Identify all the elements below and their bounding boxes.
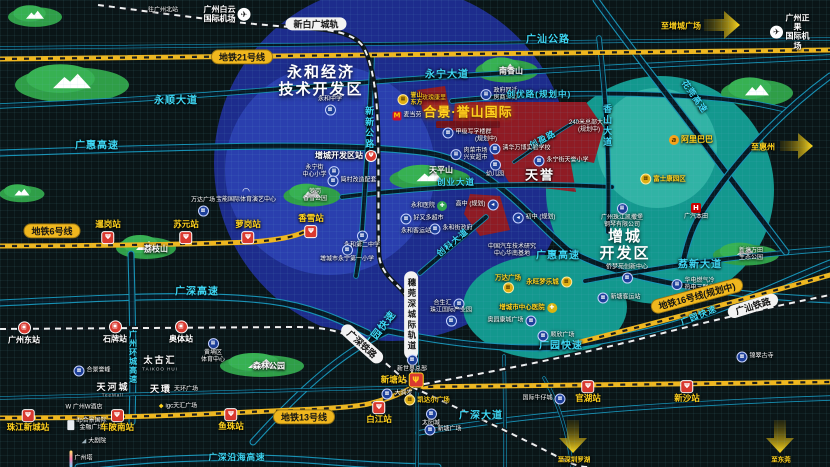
nanxiang-mountain-label: 南香山 [499,66,523,75]
honda-icon: H [691,203,701,213]
map-stage: 往广州北站广州白云 国际机场✈新白广城轨地铁21号线广汕公路至增城广场✈广州正果… [0,0,830,467]
nanxiang-mountain: 南香山 [499,66,523,75]
parc-central-plaza: 天环广场 [174,387,198,394]
yushan-dongfang: ▦誉山 东方 [397,93,422,107]
yushan-international-title: 合景·誉山国际 [423,106,512,121]
shunxin-plaza: ▦顺欣广场 [537,331,574,342]
w-hotel-label: W 广州W酒店 [66,405,103,412]
metro-icon: Ψ [110,409,123,422]
metro-icon: Ψ [224,408,237,421]
yongning-no1-primary-label: 增城市永宁第一小学 [320,257,374,264]
yuzhu-station: Ψ鱼珠站 [218,408,244,432]
parc-central: 天環 [150,384,172,394]
m13-pill: 地铁13号线 [273,409,335,424]
metrobig-icon: Ψ [408,373,423,388]
bld-icon: ▦ [533,156,544,167]
yongning-central-primary-label: 永宁街 中心小学 [302,165,326,179]
aoti-station: ▣奥体站 [169,320,193,343]
m21-pill-label: 地铁21号线 [219,52,265,62]
zc-central-hospital: 增城市中心医院✚ [499,303,557,313]
xiangshan-avenue-label: 香山大道 [602,104,612,148]
chuangyou-road: 创优路(规划中) [507,90,572,100]
rail-icon: ▣ [109,320,122,333]
to-shenzhen-luohu-label: 至深圳罗湖 [558,456,591,463]
qinghua-wanbo-school-label: 清华万博实验学校 [502,146,550,153]
bldg-icon: ▦ [404,395,415,406]
bld-icon: ▦ [671,280,682,291]
igc-tianhui-label: igc天汇广场 [165,404,197,411]
jiancun-renewal: ▦简村改造配套 [327,176,376,187]
xintang-plaza: ▦新塘广场 [424,425,461,436]
guanghui-expressway-label: 广惠高速 [75,140,119,152]
yanhai-expressway-label: 广深沿海高速 [208,453,265,463]
bldg-icon: ▦ [397,95,408,106]
metro-icon: Ψ [21,409,34,422]
luogang-station: 萝岗站Ψ [235,220,261,244]
kangli-plot-label: 玫瑰康里 [422,96,446,103]
aoyuan-kangcheng-plaza: 奥园康城广场▦ [487,316,536,327]
yonghe-middle-school: 永和中学▦ [318,97,342,116]
kaidaer-plaza: ▦凯达尔广场 [404,395,450,406]
bld-icon: ▦ [425,409,436,420]
lixin-avenue-label: 荔新大道 [678,259,722,271]
xiangxue-station-label: 香雪站 [298,214,324,224]
xinxin-road: 新新公路 [364,106,374,150]
suyuan-station: 苏元站Ψ [173,220,199,244]
guangyuan-expwy-2-label: 广园快速 [539,340,583,352]
canton-tower: 广州塔 [69,451,92,467]
taikoo-hui-sub-label: TAIKOO HUI [142,366,178,371]
aoyuan-kangcheng-plaza-label: 奥园康城广场 [487,318,523,325]
bld-icon: ▦ [555,394,566,405]
aeon-mall-label: 永旺梦乐城 [526,278,559,285]
zengcheng-devzone-station: 增城开发区站Ψ [315,150,377,162]
taikoo-hui: 太古汇 [143,355,176,365]
offices-planned: (规划中) [475,137,497,144]
xintang-station: 新塘站Ψ [381,373,424,388]
opera-icon: ◢ [82,439,87,446]
arrowb-icon: ◀ [513,213,524,224]
bld-icon: ▦ [526,316,537,327]
gac-honda-label: 广汽本田 [684,214,708,221]
chuangyou-road-label: 创优路(规划中) [507,90,572,100]
bld-icon: ▦ [450,150,461,161]
gac-honda: H广汽本田 [684,203,708,221]
parc-central-plaza-label: 天环广场 [174,387,198,394]
zhujiang-industrial-park: 珠江国际产业园▦ [430,308,472,327]
kayserburg-piano-label: 广州珠江凯撒堡 钢琴有限公司 [601,215,643,229]
wanda-plaza-suyuan: 万达广场▦ [191,198,215,217]
m6-pill-label: 地铁6号线 [31,226,72,236]
guanhu-station-label: 官湖站 [575,394,601,404]
bld-icon: ▦ [442,128,453,139]
taikoo-hui-sub: TAIKOO HUI [142,366,178,371]
kwg-yufeng: ▦合景誉峰 [73,366,110,377]
guanhu-station: Ψ官湖站 [575,380,601,404]
chuangye-avenue-label: 创业大道 [437,178,475,188]
qiaomengyuan-center: 侨梦苑创新中心▦ [606,265,648,284]
crossg-icon: ✚ [547,303,557,313]
m21-pill: 地铁21号线 [211,49,273,64]
to-gz-north-label: 往广州北站 [148,8,178,15]
bld-icon: ▦ [616,203,627,214]
guangshan-highway: 广汕公路 [526,34,570,46]
lixin-avenue: 荔新大道 [678,259,722,271]
bldg-icon: ▦ [503,283,514,294]
zc-central-hospital-label: 增城市中心医院 [499,304,545,311]
to-dongguan-label: 至东莞 [771,456,791,463]
arrowb-icon: ◀ [487,200,498,211]
bld-icon: ▦ [356,231,367,242]
offices-planned-label: (规划中) [475,137,497,144]
bld-icon: ▦ [327,176,338,187]
bld-icon: ▦ [537,331,548,342]
yonghe-bus-terminal-label: 永和客运站 [401,229,431,236]
shipai-station-label: 石牌站 [103,334,127,343]
hopson-one-label: 合生汇 [433,301,451,308]
wanda-plaza-planned-label: 万达广场 [495,274,521,281]
wanda-plaza-planned: 万达广场▦ [495,274,521,293]
cross-icon: ✚ [437,201,447,211]
grade-a-offices-label: 甲级写字楼群 [455,130,491,137]
to-shenzhen-luohu: 至深圳罗湖 [558,456,591,463]
tianyu-primary: ▦永宁街天誉小学 [533,156,588,167]
rail-icon: ▣ [175,320,188,333]
metro-icon: Ψ [581,380,594,393]
bld-icon: ▦ [73,366,84,377]
baiyun-airport: 广州白云 国际机场✈ [204,5,251,23]
luogang-xiangxue-park-label: 萝岗 香雪公园 [303,189,327,203]
xiangxue-station: 香雪站Ψ [298,214,324,238]
xintang-plaza-label: 新塘广场 [437,427,461,434]
teemall-sub-label: TeeMall [102,392,125,397]
baoneng-arena: ◠宝能国际体育演艺中心 [216,188,276,204]
plane-icon: ✈ [770,26,783,39]
arrow-to-zengcheng [704,11,740,39]
yongshun-avenue: 永顺大道 [154,95,198,107]
kindergarten: ▦幼儿园 [486,160,504,179]
qinghua-wanbo-school: ▦清华万博实验学校 [489,144,550,155]
forest-park: 森林公园 [253,361,285,370]
xinsha-station: Ψ新沙站 [674,380,700,404]
m6-pill: 地铁6号线 [23,223,80,238]
metro-icon: Ψ [680,380,693,393]
baijiang-station: Ψ白江站 [366,401,392,425]
mround-icon: Ψ [365,150,377,162]
tower-icon [69,451,72,467]
bld-icon: ▦ [324,104,335,115]
teemall: 天河城 [96,382,129,392]
bld-icon: ▦ [400,214,411,225]
foxconn-park: ▦富士康园区 [640,174,686,185]
zengcheng-devzone-station-label: 增城开发区站 [315,151,363,160]
zhujiang-newtown-station-label: 珠江新城站 [7,423,50,433]
shipai-station: ▣石牌站 [103,320,127,343]
huangpu-sports-center: ▦黄埔区 体育中心 [201,338,225,364]
lizhi-mountain: 荔枝山 [144,244,168,253]
bldg-icon: ▦ [561,277,572,288]
wanda-plaza-suyuan-label: 万达广场 [191,198,215,205]
lizhi-mountain-label: 荔枝山 [144,244,168,253]
shunxin-plaza-label: 顺欣广场 [550,333,574,340]
bld-icon: ▦ [341,245,352,256]
yushan-international-title-label: 合景·誉山国际 [423,106,512,121]
yonghe-hospital: 永和医院✚ [411,201,447,211]
baiyun-airport-label: 广州白云 国际机场 [204,5,236,23]
xinbaiguang-pill-label: 新白广城轨 [293,19,338,29]
yongning-avenue-label: 永宁大道 [425,69,469,81]
bld-icon: ▦ [424,425,435,436]
zhujiang-industrial-park-label: 珠江国际产业园 [430,308,472,315]
wantian-eco-park: 新塘万田 生态公园 [739,248,763,262]
canton-tower-label: 广州塔 [74,456,92,463]
yongning-avenue: 永宁大道 [425,69,469,81]
guangshen-avenue-label: 广深大道 [459,410,503,422]
metro-icon: Ψ [241,231,254,244]
ring-expressway: 广州环城高速 [128,330,137,384]
xintang-station-label: 新塘站 [381,375,407,385]
guangshan-highway-label: 广汕公路 [526,34,570,46]
yuzhu-station-label: 鱼珠站 [218,422,244,432]
catarc-south-base-label: 中国汽车技术研究 中心华南基地 [488,244,536,258]
huangpu-sports-center-label: 黄埔区 体育中心 [201,350,225,364]
zhujiang-newtown-station: Ψ珠江新城站 [7,409,50,433]
bld-icon: ▦ [197,205,208,216]
taikoo-hui-label: 太古汇 [143,355,176,365]
kayserburg-piano: ▦广州珠江凯撒堡 钢琴有限公司 [601,203,643,229]
yonghe-middle-school-label: 永和中学 [318,97,342,104]
bld-icon: ▦ [406,355,417,366]
ali-icon: a [669,135,679,145]
metro-icon: Ψ [101,231,114,244]
zengcheng-zone-title-label: 增城 开发区 [599,228,650,263]
parc-central-label: 天環 [150,384,172,394]
bldg-icon: ▦ [640,174,651,185]
ring-expressway-label: 广州环城高速 [128,330,137,384]
mcdonalds-label: 麦当劳 [403,113,421,120]
yonghe-bus-terminal: 永和客运站 [401,229,431,236]
yonghe-zone-title-label: 永和经济 技术开发区 [278,64,363,99]
to-gz-north: 往广州北站 [148,8,178,15]
food-market-label: 肉菜市场 兴安超市 [463,148,487,162]
guangshen-expressway-label: 广深高速 [175,286,219,298]
yonghe-zone-title: 永和经济 技术开发区 [278,64,363,99]
catarc-south-base: 中国汽车技术研究 中心华南基地 [488,244,536,258]
bld-icon: ▦ [429,224,440,235]
guanghui-expressway-2-label: 广惠高速 [536,250,580,262]
wantian-eco-park-label: 新塘万田 生态公园 [739,248,763,262]
alibaba-label: 阿里巴巴 [681,135,713,144]
zhengguo-airport-label: 广州正果 国际机场 [785,14,810,51]
teemall-sub: TeeMall [102,392,125,397]
kaidaer-plaza-label: 凯达尔广场 [417,396,450,403]
opera-house-label: 大剧院 [88,439,106,446]
xiangshan-avenue: 香山大道 [602,104,612,148]
yongshun-avenue-label: 永顺大道 [154,95,198,107]
chebei-south-station-label: 车陂南站 [100,423,134,433]
tianping-mountain-label: 天平山 [429,165,453,174]
xinxin-road-label: 新新公路 [364,106,374,150]
w-hotel: W 广州W酒店 [66,405,103,412]
bld-icon: ▦ [489,160,500,171]
gz-east-station: ▣广州东站 [8,321,40,344]
highschool-planned: 高中 (规划)◀ [456,200,499,211]
intl-jeans-city: 国际牛仔城▦ [522,394,565,405]
bld-icon: ▦ [445,315,456,326]
tianyu-district: 天誉 [525,169,555,184]
bld-icon: ▦ [489,144,500,155]
to-dongguan: 至东莞 [771,456,791,463]
baoneng-arena-label: 宝能国际体育演艺中心 [216,197,276,204]
gz-east-station-label: 广州东站 [8,335,40,344]
arrow-to-huizhou [780,133,813,159]
guangshen-avenue: 广深大道 [459,410,503,422]
yanhai-expressway: 广深沿海高速 [208,453,265,463]
bld-icon: ▦ [736,352,747,363]
bld-icon: ▦ [381,389,392,400]
arrow-to-dongguan [766,420,794,453]
middleschool-planned: ◀初中 (规划) [513,213,556,224]
middleschool-planned-label: 初中 (规划) [526,215,556,222]
chuangye-avenue: 创业大道 [437,178,475,188]
guangshen-expressway: 广深高速 [175,286,219,298]
yushan-dongfang-label: 誉山 东方 [410,93,422,107]
xinsha-station-label: 新沙站 [674,394,700,404]
bld-icon: ▦ [621,272,632,283]
bldg2-icon [67,420,74,430]
to-zengcheng-square-label: 至增城广场 [661,21,701,30]
new-world-hq: ▦新世界总部 [397,355,427,374]
foxconn-park-label: 富士康园区 [653,175,686,182]
mcdonalds: M麦当劳 [392,112,421,121]
alibaba: a阿里巴巴 [669,135,713,145]
kindergarten-label: 幼儿园 [486,172,504,179]
bld-icon: ▦ [597,293,608,304]
kangli-plot: 玫瑰康里 [422,96,446,103]
to-huizhou-label: 至惠州 [751,142,775,151]
ancient-temple-label: 锦翠古寺 [749,354,773,361]
aoti-station-label: 奥体站 [169,334,193,343]
luogang-station-label: 萝岗站 [235,220,261,230]
ancient-temple: ▦锦翠古寺 [736,352,773,363]
food-market: ▦肉菜市场 兴安超市 [450,148,487,162]
guanghui-expressway-2: 广惠高速 [536,250,580,262]
plane-icon: ✈ [238,8,251,21]
dome-icon: ◠ [242,188,250,196]
igc-tianhui: ◆igc天汇广场 [159,404,197,411]
xiangang-station-label: 暹岗站 [95,220,121,230]
opera-house: ◢大剧院 [82,439,107,446]
trust-mart: ▦好又多超市 [400,214,443,225]
tianping-mountain: 天平山 [429,165,453,174]
guangyuan-expwy-2: 广园快速 [539,340,583,352]
metro-icon: Ψ [179,231,192,244]
intl-jeans-city-label: 国际牛仔城 [522,396,552,403]
tianyu-district-label: 天誉 [525,169,555,184]
suiguanshen-pill: 穗莞深城际轨道 [404,271,418,359]
suiguanshen-pill-label: 穗莞深城际轨道 [406,278,416,352]
suyuan-station-label: 苏元站 [173,220,199,230]
trust-mart-label: 好又多超市 [413,216,443,223]
to-zengcheng-square: 至增城广场 [661,21,701,30]
jiancun-renewal-label: 简村改造配套 [340,178,376,185]
luogang-xiangxue-park: 萝岗 香雪公园 [303,189,327,203]
teemall-label: 天河城 [96,382,129,392]
rail-icon: ▣ [18,321,31,334]
metro-icon: Ψ [304,225,317,238]
igc-icon: ◆ [159,404,164,411]
chebei-south-station: Ψ车陂南站 [100,409,134,433]
metro-icon: Ψ [372,401,385,414]
zhengguo-airport: ✈广州正果 国际机场 [770,14,810,51]
xintang-bus-terminal-label: 新塘客运站 [610,295,640,302]
highschool-planned-label: 高中 (规划) [456,202,486,209]
xiangang-station: 暹岗站Ψ [95,220,121,244]
yonghe-hospital-label: 永和医院 [411,203,435,210]
qiaomengyuan-center-label: 侨梦苑创新中心 [606,265,648,272]
tianyu-primary-label: 永宁街天誉小学 [546,158,588,165]
mcd-icon: M [392,112,401,121]
kwg-yufeng-label: 合景誉峰 [86,368,110,375]
baijiang-station-label: 白江站 [366,415,392,425]
zengcheng-zone-title: 增城 开发区 [599,228,650,263]
yongning-no1-primary: ▦增城市永宁第一小学 [320,245,374,264]
aeon-mall: 永旺梦乐城▦ [526,277,572,288]
xinbaiguang-pill: 新白广城轨 [285,17,346,30]
guanghui-expressway: 广惠高速 [75,140,119,152]
xintang-bus-terminal: ▦新塘客运站 [597,293,640,304]
m13-pill-label: 地铁13号线 [281,412,327,422]
to-huizhou: 至惠州 [751,142,775,151]
forest-park-label: 森林公园 [253,361,285,370]
bld-icon: ▦ [207,338,218,349]
bld-icon: ▦ [480,90,491,101]
